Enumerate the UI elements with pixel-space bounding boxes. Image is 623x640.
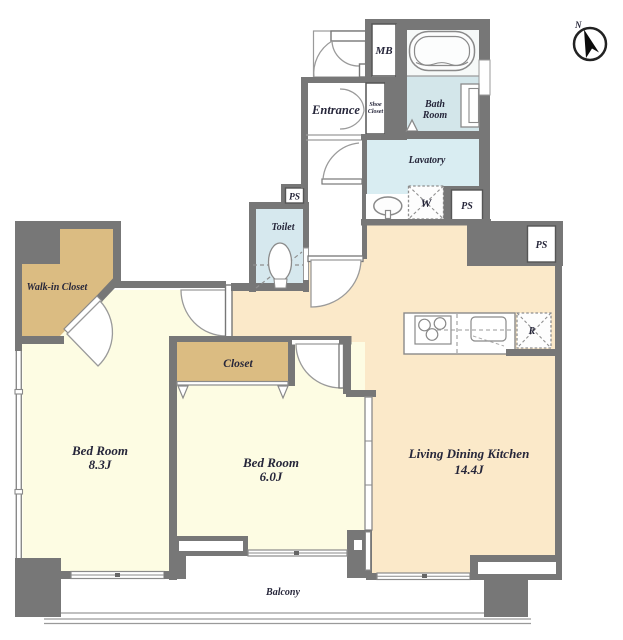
svg-text:Room: Room (422, 110, 448, 121)
svg-text:W: W (421, 196, 433, 210)
svg-text:Balcony: Balcony (265, 587, 300, 598)
svg-text:Shoe: Shoe (369, 102, 382, 108)
svg-text:14.4J: 14.4J (454, 462, 484, 477)
svg-text:N: N (574, 20, 582, 30)
svg-text:Bath: Bath (424, 99, 445, 110)
svg-text:Lavatory: Lavatory (408, 155, 446, 166)
svg-text:Toilet: Toilet (272, 222, 296, 233)
svg-text:Bed Room: Bed Room (71, 443, 128, 458)
svg-text:MB: MB (374, 45, 392, 57)
svg-text:R: R (528, 326, 536, 337)
svg-text:6.0J: 6.0J (260, 469, 283, 484)
svg-text:Walk-in Closet: Walk-in Closet (27, 282, 89, 293)
svg-text:Living Dining Kitchen: Living Dining Kitchen (408, 446, 530, 461)
svg-text:Closet: Closet (368, 109, 384, 115)
svg-text:Bed Room: Bed Room (242, 455, 299, 470)
svg-text:PS: PS (461, 201, 473, 212)
svg-text:Entrance: Entrance (311, 103, 360, 117)
svg-text:Closet: Closet (223, 358, 253, 370)
svg-text:8.3J: 8.3J (89, 457, 112, 472)
svg-text:PS: PS (536, 240, 548, 251)
svg-text:PS: PS (289, 193, 300, 203)
